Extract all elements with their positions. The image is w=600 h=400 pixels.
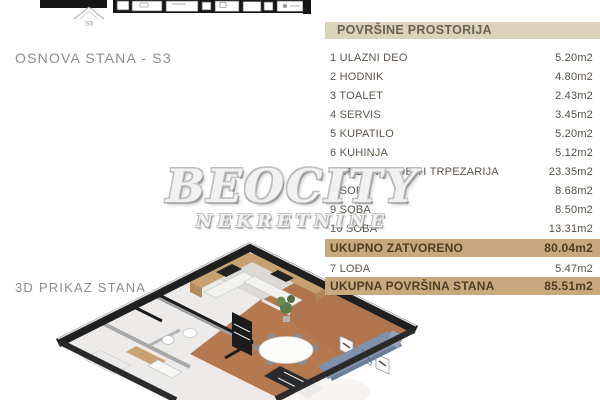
areas-table: 1 ULAZNI DEO 5.20m2 2 HODNIK 4.80m2 3 TO…: [325, 48, 600, 238]
room-label: 8 SOBA: [330, 185, 371, 197]
room-area: 8.68m2: [555, 185, 593, 197]
svg-text:S3: S3: [85, 21, 93, 28]
sink: [183, 329, 197, 338]
wall-segment: [40, 0, 107, 8]
plan-3d-title: 3D PRIKAZ STANA: [15, 280, 146, 295]
room-label: 6 KUHINJA: [330, 147, 388, 159]
loggia-row: 7 LOĐA 5.47m2: [325, 259, 600, 278]
total-area-row: UKUPNA POVRŠINA STANA 85.51m2: [325, 277, 600, 295]
table-row: 8 SOBA 8.68m2: [325, 181, 600, 200]
plan-2d-title: OSNOVA STANA - S3: [15, 50, 172, 66]
room-area: 5.12m2: [555, 147, 593, 159]
room-label: 4 SERVIS: [330, 109, 381, 121]
room-label: 10 SOBA: [330, 223, 377, 235]
room-area: 8.50m2: [555, 204, 593, 216]
room-label: 5 KUPATILO: [330, 128, 394, 140]
table-row: 7 DNEVNA SOBA I TRPEZARIJA 23.35m2: [325, 162, 600, 181]
total-area-value: 85.51m2: [544, 279, 593, 293]
total-closed-row: UKUPNO ZATVORENO 80.04m2: [325, 239, 600, 257]
table-row: 1 ULAZNI DEO 5.20m2: [325, 48, 600, 67]
total-area-label: UKUPNA POVRŠINA STANA: [330, 279, 494, 293]
room-area: 5.20m2: [555, 128, 593, 140]
table-row: 6 KUHINJA 5.12m2: [325, 143, 600, 162]
room-label: 2 HODNIK: [330, 71, 384, 83]
table-row: 4 SERVIS 3.45m2: [325, 105, 600, 124]
room-area: 5.20m2: [555, 52, 593, 64]
total-closed-value: 80.04m2: [544, 241, 593, 255]
room-area: 2.43m2: [555, 90, 593, 102]
room-label: 3 TOALET: [330, 90, 383, 102]
plan-wall-strip: [113, 0, 311, 14]
total-closed-label: UKUPNO ZATVORENO: [330, 241, 463, 255]
room-label: 1 ULAZNI DEO: [330, 52, 408, 64]
room-label: 7 DNEVNA SOBA I TRPEZARIJA: [330, 166, 499, 178]
room-area: 3.45m2: [555, 109, 593, 121]
room-area: 23.35m2: [549, 166, 593, 178]
toilet: [162, 336, 174, 345]
table-row: 5 KUPATILO 5.20m2: [325, 124, 600, 143]
room-label: 9 SOBA: [330, 204, 371, 216]
table-row: 3 TOALET 2.43m2: [325, 86, 600, 105]
loggia-label: 7 LOĐA: [330, 263, 370, 275]
room-area: 4.80m2: [555, 71, 593, 83]
table-row: 9 SOBA 8.50m2: [325, 200, 600, 219]
floorplan-sheet: S3 OSNOVA STANA - S3 3D PRIKAZ STANA POV…: [0, 0, 600, 400]
table-title: POVRŠINE PROSTORIJA: [325, 22, 600, 39]
table-row: 2 HODNIK 4.80m2: [325, 67, 600, 86]
loggia-value: 5.47m2: [555, 263, 593, 275]
table-row: 10 SOBA 13.31m2: [325, 219, 600, 238]
room-area: 13.31m2: [549, 223, 593, 235]
unit-marker-s3: S3: [74, 7, 104, 28]
